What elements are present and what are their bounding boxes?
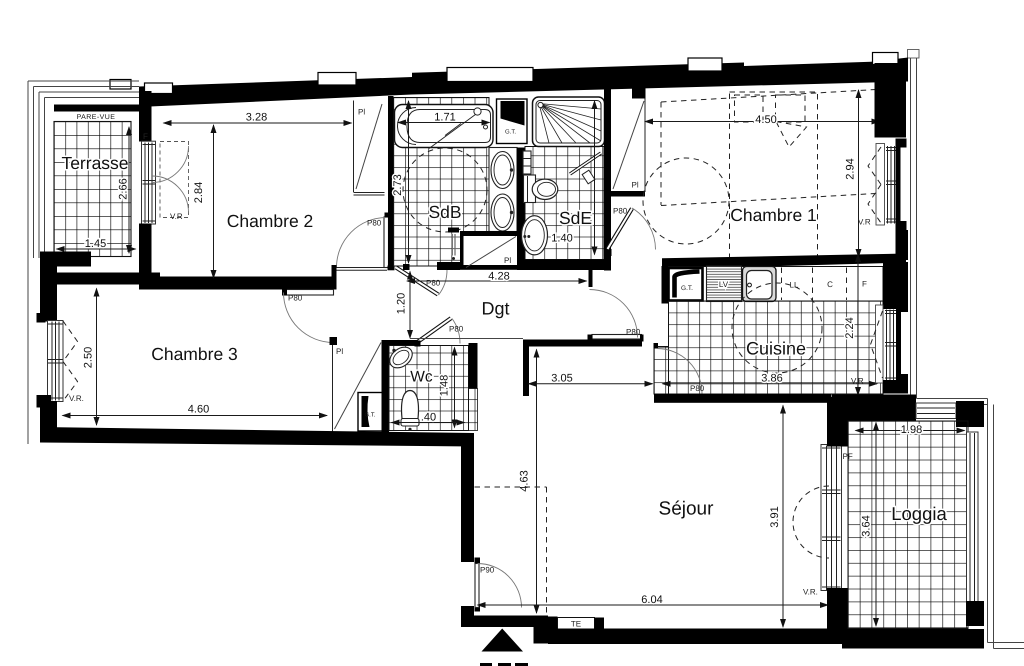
svg-text:Chambre 3: Chambre 3: [151, 344, 238, 364]
svg-text:V.R: V.R: [170, 212, 183, 221]
svg-text:C: C: [827, 280, 833, 289]
svg-text:V.R: V.R: [851, 377, 864, 386]
svg-text:1.98: 1.98: [901, 424, 922, 436]
svg-text:Pl: Pl: [504, 256, 511, 265]
svg-text:1.45: 1.45: [85, 238, 106, 250]
svg-text:V.R: V.R: [858, 218, 871, 227]
svg-text:P80: P80: [288, 294, 303, 303]
svg-text:G.T.: G.T.: [681, 285, 693, 292]
svg-text:Wc: Wc: [410, 369, 433, 386]
svg-text:P80: P80: [449, 325, 464, 334]
svg-text:P80: P80: [613, 207, 628, 216]
svg-text:4.60: 4.60: [188, 404, 209, 416]
svg-text:Séjour: Séjour: [659, 499, 715, 520]
svg-text:P80: P80: [426, 279, 441, 288]
svg-text:2.94: 2.94: [845, 158, 857, 179]
svg-text:SdE: SdE: [559, 208, 592, 228]
svg-text:2.50: 2.50: [83, 347, 95, 368]
svg-text:3.64: 3.64: [861, 515, 873, 536]
svg-text:PARE-VUE: PARE-VUE: [77, 114, 116, 121]
svg-text:V.R.: V.R.: [69, 394, 84, 403]
svg-text:Terrasse: Terrasse: [61, 153, 128, 173]
svg-text:2.84: 2.84: [193, 182, 205, 203]
svg-text:F: F: [143, 132, 148, 141]
svg-text:G.T.: G.T.: [364, 412, 375, 419]
svg-text:SdB: SdB: [428, 202, 461, 222]
svg-text:3.86: 3.86: [761, 373, 782, 385]
svg-text:F: F: [862, 280, 867, 289]
svg-text:LV: LV: [719, 280, 729, 289]
svg-text:1.48: 1.48: [439, 375, 451, 396]
svg-text:P80: P80: [690, 384, 705, 393]
svg-text:P80: P80: [626, 328, 641, 337]
svg-text:Cuisine: Cuisine: [746, 339, 806, 359]
svg-text:P80: P80: [367, 219, 382, 228]
svg-text:2.24: 2.24: [844, 317, 856, 338]
svg-text:G.T.: G.T.: [505, 129, 516, 136]
svg-text:Loggia: Loggia: [891, 503, 947, 524]
svg-text:Chambre 2: Chambre 2: [227, 211, 314, 231]
svg-text:3.91: 3.91: [769, 506, 781, 527]
svg-text:TE: TE: [571, 620, 581, 629]
svg-text:.40: .40: [421, 412, 436, 424]
svg-text:1.71: 1.71: [434, 112, 455, 124]
svg-text:Chambre 1: Chambre 1: [730, 205, 817, 225]
svg-text:P90: P90: [480, 566, 495, 575]
svg-text:4.50: 4.50: [755, 114, 776, 126]
svg-text:Pl: Pl: [632, 181, 639, 190]
svg-text:Pl: Pl: [336, 347, 343, 356]
svg-text:3.28: 3.28: [246, 112, 267, 124]
svg-text:2.73: 2.73: [392, 174, 404, 195]
svg-text:4.63: 4.63: [519, 470, 531, 491]
svg-text:Pl: Pl: [358, 108, 365, 117]
svg-text:1.40: 1.40: [551, 233, 572, 245]
svg-text:3.05: 3.05: [551, 373, 572, 385]
svg-text:4.28: 4.28: [488, 271, 509, 283]
svg-text:2.66: 2.66: [118, 178, 130, 199]
svg-text:V.R.: V.R.: [803, 588, 818, 597]
svg-text:6.04: 6.04: [641, 594, 662, 606]
svg-text:1.20: 1.20: [396, 293, 408, 314]
svg-text:Dgt: Dgt: [481, 299, 509, 319]
